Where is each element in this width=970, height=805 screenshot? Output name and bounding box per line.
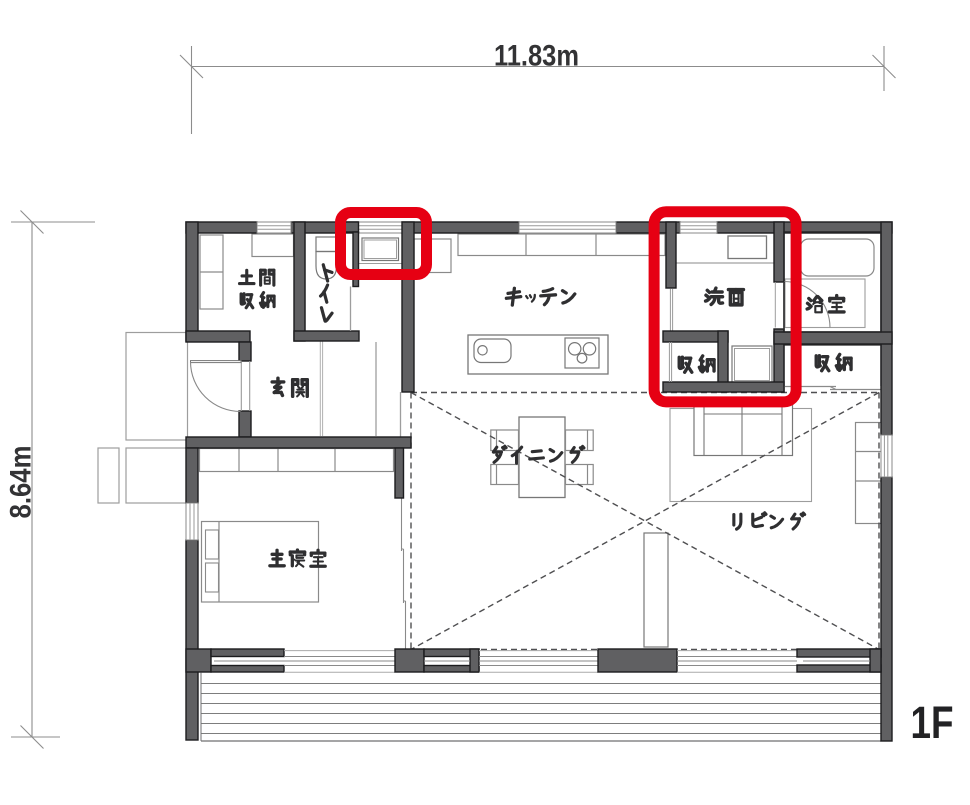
svg-text:8.64m: 8.64m	[5, 446, 38, 519]
svg-text:1F: 1F	[911, 697, 954, 748]
svg-text:11.83m: 11.83m	[494, 40, 579, 73]
